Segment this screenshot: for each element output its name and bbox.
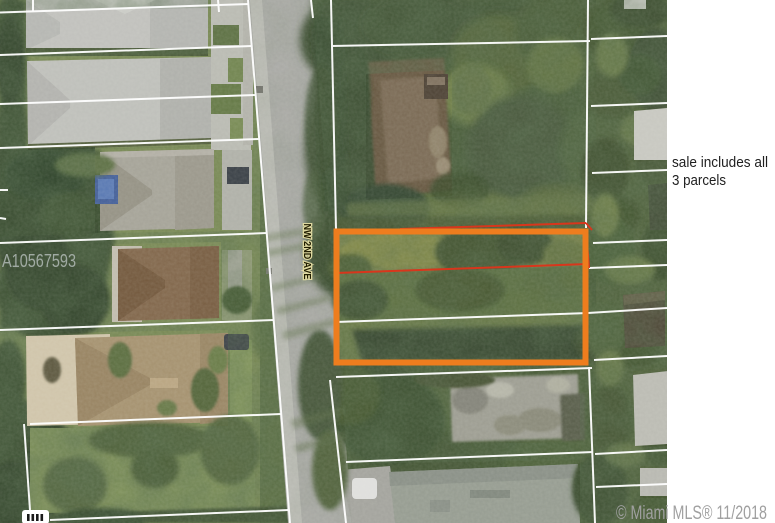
svg-text:3 parcels: 3 parcels: [672, 173, 726, 189]
svg-text:NW 2ND AVE: NW 2ND AVE: [301, 224, 313, 280]
svg-text:A10567593: A10567593: [2, 251, 76, 271]
svg-text:© Miami MLS® 11/2018: © Miami MLS® 11/2018: [616, 503, 767, 523]
svg-text:sale includes all: sale includes all: [672, 155, 768, 171]
